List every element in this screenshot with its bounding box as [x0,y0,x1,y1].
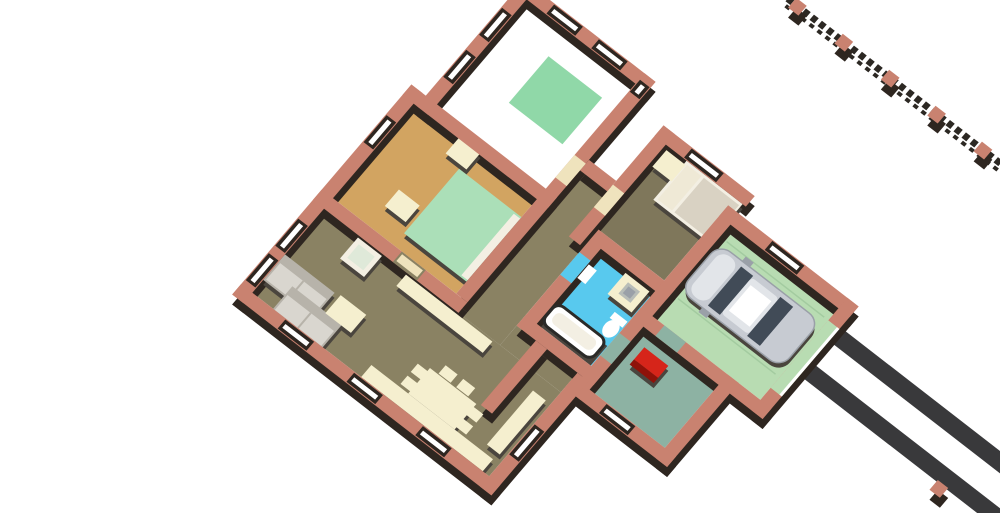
floorplan-3d-viewport[interactable] [0,0,1000,513]
driveway-stripe-north [822,322,1000,513]
zigzag-fence [783,0,1000,249]
